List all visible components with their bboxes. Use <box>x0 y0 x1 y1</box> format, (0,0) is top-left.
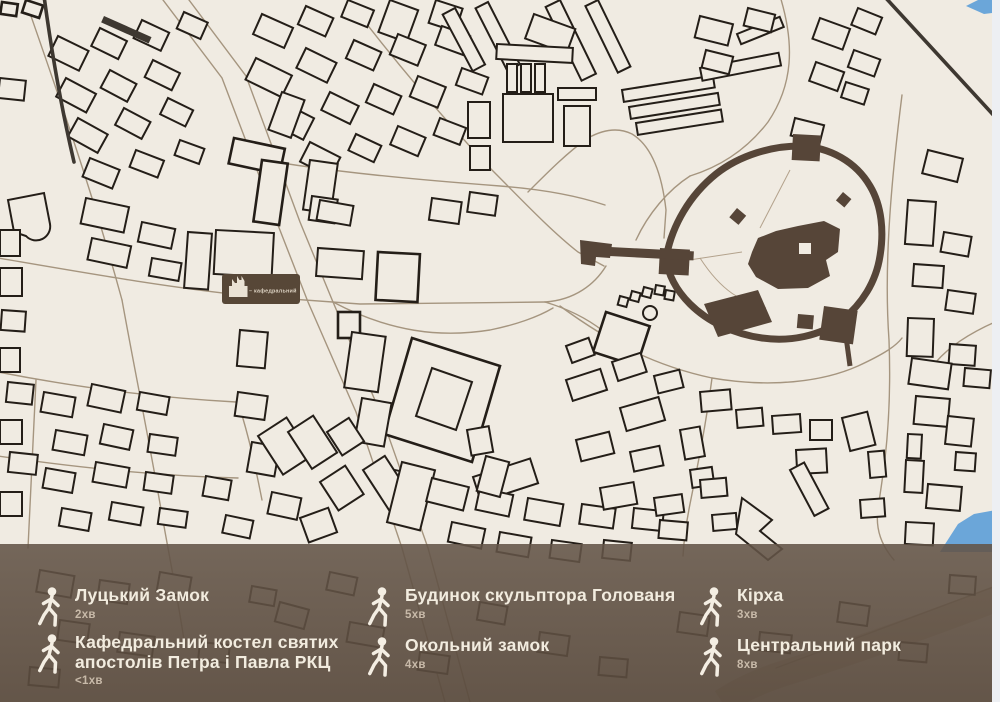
legend-title: Луцький Замок <box>75 586 209 606</box>
legend-title: Кафедральний костел святих <box>75 633 339 653</box>
legend-item-okolny-castle: Окольний замок 4хв <box>368 636 549 678</box>
walking-person-icon <box>700 586 726 628</box>
legend-walk-time: 8хв <box>737 659 901 671</box>
walking-person-icon <box>700 636 726 678</box>
legend-title-line2: апостолів Петра і Павла РКЦ <box>75 653 339 673</box>
legend-title: Кірха <box>737 586 783 606</box>
legend-item-cathedral: Кафедральний костел святих апостолів Пет… <box>38 633 339 687</box>
legend-title: Будинок скульптора Голованя <box>405 586 675 606</box>
legend-item-lutsk-castle: Луцький Замок 2хв <box>38 586 209 628</box>
legend-item-central-park: Центральний парк 8хв <box>700 636 901 678</box>
legend-item-kirche: Кірха 3хв <box>700 586 783 628</box>
cathedral-marker-label: – кафедральний <box>249 288 297 295</box>
castle-tower-north <box>792 134 821 161</box>
legend-walk-time: <1хв <box>75 675 339 687</box>
walking-person-icon <box>368 636 394 678</box>
map-edge-strip <box>992 0 1000 702</box>
castle-tower-south <box>819 306 857 344</box>
cathedral-marker: – кафедральний <box>222 274 300 304</box>
legend-walk-time: 5хв <box>405 609 675 621</box>
legend-walk-time: 4хв <box>405 659 549 671</box>
legend-title: Окольний замок <box>405 636 549 656</box>
legend-walk-time: 3хв <box>737 609 783 621</box>
legend-walk-time: 2хв <box>75 609 209 621</box>
walking-person-icon <box>38 633 64 675</box>
legend-item-sculptor-house: Будинок скульптора Голованя 5хв <box>368 586 675 628</box>
legend-title: Центральний парк <box>737 636 901 656</box>
walking-person-icon <box>368 586 394 628</box>
walking-person-icon <box>38 586 64 628</box>
lutsk-map-page: – кафедральний Луцький Замок 2хв Кафедра… <box>0 0 1000 702</box>
